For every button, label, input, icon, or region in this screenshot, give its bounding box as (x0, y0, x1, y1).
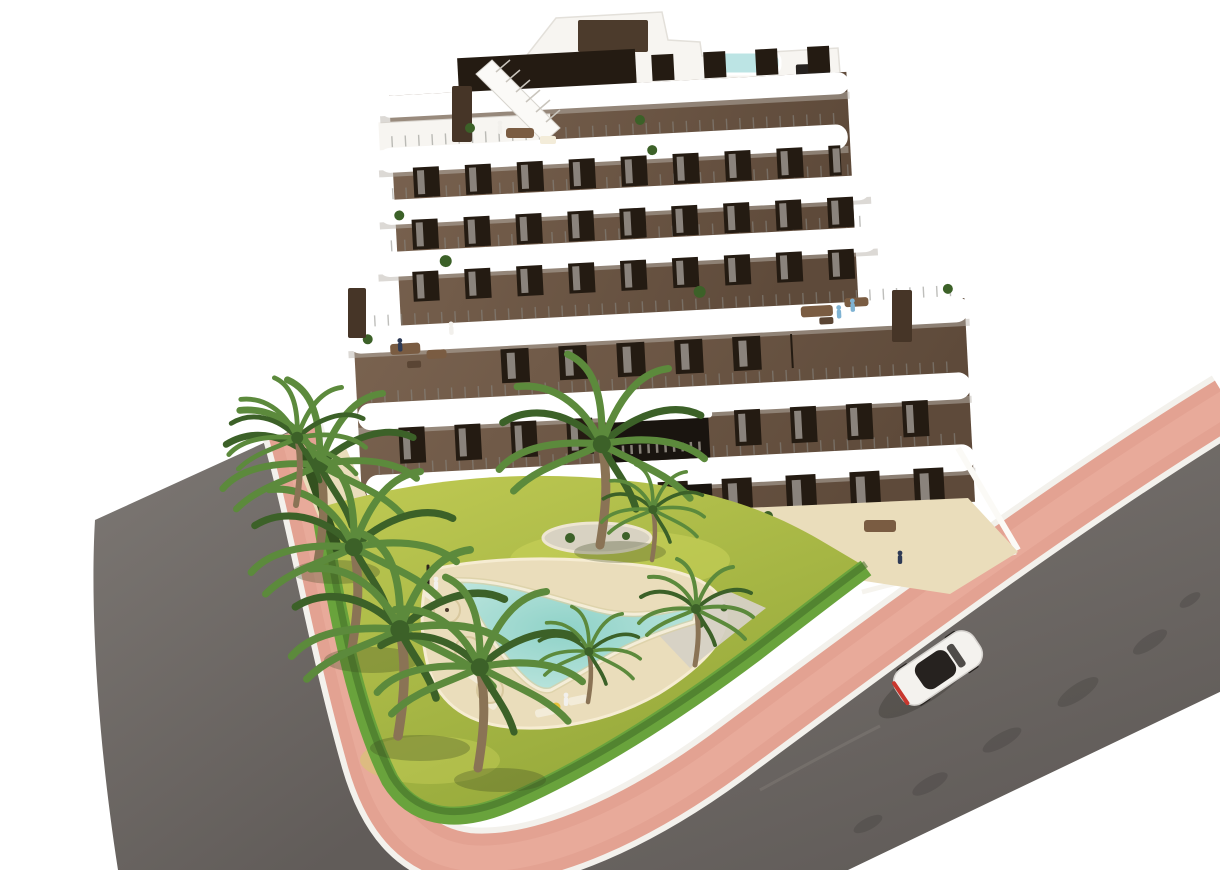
outdoor-sofa (426, 349, 446, 359)
outdoor-sofa (506, 128, 534, 138)
scene-render (0, 0, 1220, 870)
island-shrub (565, 533, 575, 543)
person-figure (836, 305, 841, 319)
outdoor-sofa (390, 343, 421, 356)
person-figure (564, 693, 569, 706)
chimney-top-left (452, 86, 472, 142)
person-figure (498, 121, 503, 134)
chimney-lower-right (892, 290, 912, 342)
person-figure (397, 338, 402, 352)
outdoor-sofa (801, 305, 834, 318)
person-figure (850, 298, 855, 312)
person-figure (434, 577, 439, 590)
coffee-table (819, 317, 833, 325)
coffee-table (540, 136, 556, 144)
coffee-table (407, 361, 421, 369)
roof-stair-bulkhead (578, 20, 648, 52)
chimney-lower-left (348, 288, 366, 338)
render-canvas (0, 0, 1220, 870)
outdoor-sofa (864, 520, 896, 532)
terrace-plant (635, 115, 645, 125)
parasol-pole (445, 608, 449, 612)
person-figure (448, 321, 453, 335)
palm-shadow (454, 768, 546, 792)
palm-shadow (370, 735, 470, 761)
person-figure (898, 551, 903, 564)
island-shrub (622, 532, 630, 540)
outdoor-sofa (844, 297, 868, 307)
terrace-plant (465, 123, 475, 133)
